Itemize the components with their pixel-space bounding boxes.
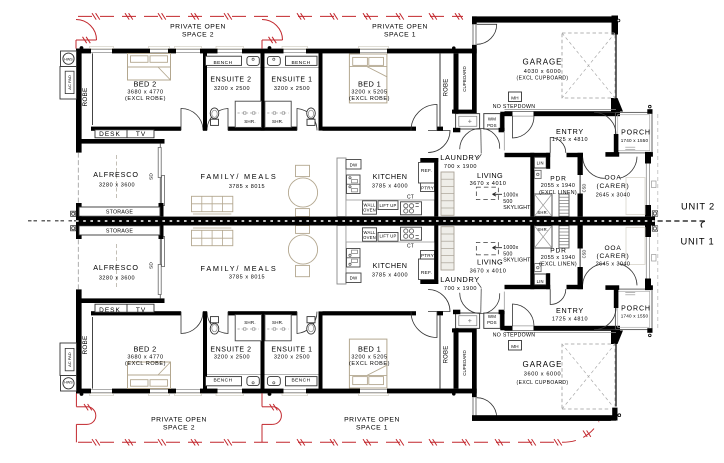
svg-text:SHR.: SHR. xyxy=(272,320,284,325)
svg-text:OOA: OOA xyxy=(604,245,621,252)
svg-text:3280 x 3600: 3280 x 3600 xyxy=(99,276,135,282)
svg-text:ENTRY: ENTRY xyxy=(556,127,584,136)
svg-text:3200 x 5205: 3200 x 5205 xyxy=(351,355,387,361)
svg-text:STORAGE: STORAGE xyxy=(106,229,133,235)
svg-text:ROBE: ROBE xyxy=(444,346,450,364)
svg-text:ALFRESCO: ALFRESCO xyxy=(93,263,139,272)
svg-text:SPACE 1: SPACE 1 xyxy=(356,425,388,432)
svg-text:3785 x 4000: 3785 x 4000 xyxy=(372,184,408,190)
svg-text:HWS: HWS xyxy=(64,380,73,384)
svg-text:(EXCL ROBE): (EXCL ROBE) xyxy=(349,96,390,102)
svg-text:BENCH: BENCH xyxy=(291,378,310,384)
svg-text:(EXCL ROBE): (EXCL ROBE) xyxy=(349,361,390,367)
svg-text:GARAGE: GARAGE xyxy=(523,360,563,369)
svg-text:ROBE: ROBE xyxy=(82,88,89,107)
svg-text:UNIT 2: UNIT 2 xyxy=(681,202,715,212)
svg-text:SPACE 2: SPACE 2 xyxy=(182,31,214,38)
svg-text:LIN: LIN xyxy=(537,161,544,166)
svg-text:TV: TV xyxy=(136,307,146,314)
svg-text:CSD: CSD xyxy=(582,184,587,193)
svg-text:SD: SD xyxy=(148,173,154,180)
svg-text:CUPBOARD: CUPBOARD xyxy=(462,66,467,92)
svg-text:SPACE 1: SPACE 1 xyxy=(384,31,416,38)
svg-text:KITCHEN: KITCHEN xyxy=(373,261,408,270)
svg-text:SHR.: SHR. xyxy=(537,210,548,215)
svg-text:FAMILY/ MEALS: FAMILY/ MEALS xyxy=(201,172,278,181)
svg-text:SHR.: SHR. xyxy=(244,119,256,124)
svg-text:ENSUITE 1: ENSUITE 1 xyxy=(271,347,312,354)
svg-text:1740 x 1550: 1740 x 1550 xyxy=(621,314,649,319)
svg-text:DW: DW xyxy=(350,276,358,281)
svg-text:3200 x 5205: 3200 x 5205 xyxy=(351,90,387,96)
svg-text:LAUNDRY: LAUNDRY xyxy=(440,275,480,284)
svg-text:500: 500 xyxy=(503,251,512,257)
svg-text:MH: MH xyxy=(511,95,519,100)
svg-text:UNIT 1: UNIT 1 xyxy=(680,237,714,247)
svg-text:PDS: PDS xyxy=(487,320,497,325)
svg-text:STORAGE: STORAGE xyxy=(106,210,133,216)
svg-text:BENCH: BENCH xyxy=(213,60,232,66)
svg-text:OOA: OOA xyxy=(604,175,621,182)
svg-text:ENSUITE 1: ENSUITE 1 xyxy=(271,77,312,84)
svg-text:3670 x 4010: 3670 x 4010 xyxy=(470,181,507,187)
svg-text:NO STEPDOWN: NO STEPDOWN xyxy=(493,104,536,110)
svg-text:KITCHEN: KITCHEN xyxy=(373,172,408,181)
svg-text:PRIVATE OPEN: PRIVATE OPEN xyxy=(151,417,207,424)
svg-text:BENCH: BENCH xyxy=(291,60,310,66)
svg-text:GARAGE: GARAGE xyxy=(523,58,563,67)
svg-text:3680 x 4770: 3680 x 4770 xyxy=(127,90,163,96)
svg-text:SKYLIGHT: SKYLIGHT xyxy=(503,205,531,211)
svg-text:CT: CT xyxy=(407,243,414,249)
svg-text:REF.: REF. xyxy=(421,168,432,174)
svg-text:AC PAD: AC PAD xyxy=(67,352,72,367)
svg-text:BED 1: BED 1 xyxy=(358,345,381,354)
svg-text:PRIVATE OPEN: PRIVATE OPEN xyxy=(344,417,400,424)
svg-text:NO STEPDOWN: NO STEPDOWN xyxy=(493,333,536,339)
svg-text:(EXCL ROBE): (EXCL ROBE) xyxy=(125,96,166,102)
svg-text:PDR: PDR xyxy=(550,176,567,183)
svg-text:BENCH: BENCH xyxy=(213,378,232,384)
svg-text:1725 x 4810: 1725 x 4810 xyxy=(552,317,588,323)
svg-text:ENSUITE 2: ENSUITE 2 xyxy=(210,77,251,84)
svg-text:3600 x 6000: 3600 x 6000 xyxy=(524,372,561,378)
svg-text:PDS: PDS xyxy=(487,123,497,128)
svg-text:LIN: LIN xyxy=(537,279,544,284)
svg-text:LIVING: LIVING xyxy=(477,258,503,267)
svg-text:WM: WM xyxy=(488,314,496,319)
svg-text:AC PAD: AC PAD xyxy=(67,75,72,90)
svg-text:SHR.: SHR. xyxy=(244,320,256,325)
svg-text:SD: SD xyxy=(148,262,154,269)
svg-text:BED 1: BED 1 xyxy=(358,80,381,89)
svg-text:700 x 1900: 700 x 1900 xyxy=(444,164,477,170)
svg-text:CT: CT xyxy=(407,194,414,200)
svg-text:1740 x 1550: 1740 x 1550 xyxy=(621,138,649,143)
svg-text:BED 2: BED 2 xyxy=(133,80,156,89)
svg-text:ROBE: ROBE xyxy=(444,79,450,97)
svg-text:SPACE 2: SPACE 2 xyxy=(163,425,195,432)
svg-text:3280 x 3600: 3280 x 3600 xyxy=(99,183,135,189)
svg-text:(EXCL LINEN): (EXCL LINEN) xyxy=(539,190,577,196)
svg-text:OVEN: OVEN xyxy=(363,235,376,240)
svg-text:SHR.: SHR. xyxy=(272,119,284,124)
svg-text:CUPBOARD: CUPBOARD xyxy=(462,350,467,376)
svg-text:2645 x 3040: 2645 x 3040 xyxy=(596,262,631,268)
svg-text:1000x: 1000x xyxy=(503,193,518,199)
svg-text:LIFT UP: LIFT UP xyxy=(380,234,397,239)
svg-text:SHR.: SHR. xyxy=(537,227,548,232)
svg-text:3200 x 2500: 3200 x 2500 xyxy=(214,86,250,92)
svg-text:LAUNDRY: LAUNDRY xyxy=(440,153,480,162)
svg-text:DESK: DESK xyxy=(99,131,121,138)
svg-text:PDR: PDR xyxy=(550,248,567,255)
svg-text:PRIVATE OPEN: PRIVATE OPEN xyxy=(372,23,428,30)
svg-text:3670 x 4010: 3670 x 4010 xyxy=(470,269,507,275)
svg-text:2055 x 1940: 2055 x 1940 xyxy=(541,183,576,189)
svg-text:700 x 1900: 700 x 1900 xyxy=(444,286,477,292)
svg-text:PORCH: PORCH xyxy=(621,306,651,313)
svg-text:PTRY: PTRY xyxy=(421,253,434,258)
svg-text:HWS: HWS xyxy=(64,57,73,61)
svg-text:FAMILY/ MEALS: FAMILY/ MEALS xyxy=(201,264,278,273)
svg-text:2055 x 1940: 2055 x 1940 xyxy=(541,255,576,261)
svg-text:LIFT UP: LIFT UP xyxy=(380,203,397,208)
svg-text:1000x: 1000x xyxy=(503,245,518,251)
svg-text:OVEN: OVEN xyxy=(363,207,376,212)
svg-text:4030 x 6000: 4030 x 6000 xyxy=(524,69,561,75)
svg-text:(CARER): (CARER) xyxy=(596,253,629,260)
svg-text:(CARER): (CARER) xyxy=(596,183,629,190)
svg-text:3680 x 4770: 3680 x 4770 xyxy=(127,355,163,361)
svg-text:DESK: DESK xyxy=(99,307,121,314)
svg-text:3785 x 4000: 3785 x 4000 xyxy=(372,273,408,279)
svg-text:BED 2: BED 2 xyxy=(133,345,156,354)
svg-text:3200 x 2500: 3200 x 2500 xyxy=(274,355,310,361)
svg-text:LIVING: LIVING xyxy=(477,171,503,180)
svg-text:REF.: REF. xyxy=(421,270,432,276)
svg-text:PTRY: PTRY xyxy=(421,185,434,190)
svg-text:ROBE: ROBE xyxy=(82,336,89,355)
svg-text:3200 x 2500: 3200 x 2500 xyxy=(214,355,250,361)
svg-text:SKYLIGHT: SKYLIGHT xyxy=(503,258,531,264)
svg-text:WM: WM xyxy=(488,117,496,122)
svg-text:PORCH: PORCH xyxy=(621,130,651,137)
svg-text:MH: MH xyxy=(511,344,519,349)
svg-text:(EXCL CUPBOARD): (EXCL CUPBOARD) xyxy=(517,380,569,386)
svg-text:(EXCL LINEN): (EXCL LINEN) xyxy=(539,262,577,268)
svg-text:ENTRY: ENTRY xyxy=(556,306,584,315)
svg-text:(EXCL ROBE): (EXCL ROBE) xyxy=(125,361,166,367)
svg-text:3785 x 8015: 3785 x 8015 xyxy=(229,184,265,190)
svg-text:3200 x 2500: 3200 x 2500 xyxy=(274,86,310,92)
svg-text:DW: DW xyxy=(350,163,358,168)
svg-text:TV: TV xyxy=(136,131,146,138)
svg-text:ENSUITE 2: ENSUITE 2 xyxy=(210,347,251,354)
svg-text:1725 x 4810: 1725 x 4810 xyxy=(552,137,588,143)
svg-text:2645 x 3040: 2645 x 3040 xyxy=(596,192,631,198)
svg-text:ALFRESCO: ALFRESCO xyxy=(93,170,139,179)
svg-text:3785 x 8015: 3785 x 8015 xyxy=(229,275,265,281)
svg-text:(EXCL CUPBOARD): (EXCL CUPBOARD) xyxy=(517,76,569,82)
svg-text:CSD: CSD xyxy=(582,250,587,259)
svg-text:PRIVATE OPEN: PRIVATE OPEN xyxy=(170,23,226,30)
